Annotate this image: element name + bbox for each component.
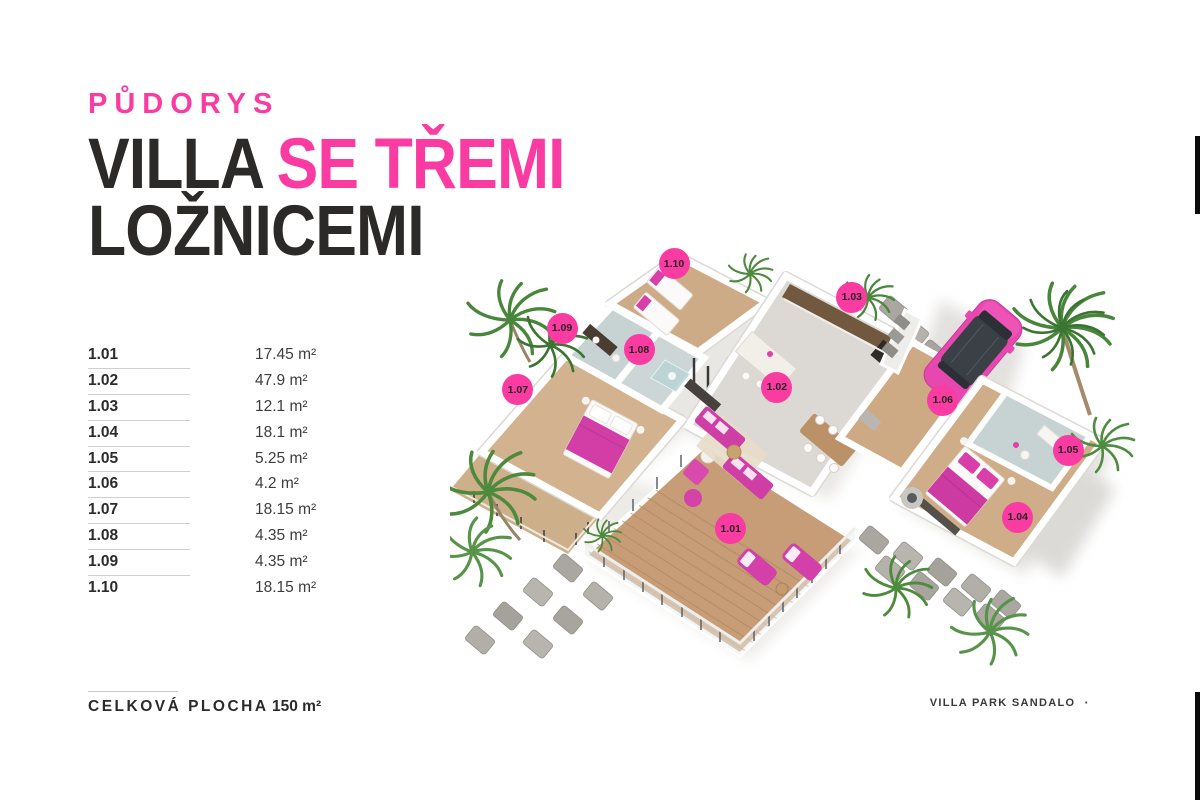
room-area: 4.35 m² bbox=[255, 527, 308, 545]
room-code: 1.08 bbox=[88, 527, 255, 545]
room-area: 18.1 m² bbox=[255, 424, 308, 442]
room-code: 1.05 bbox=[88, 450, 255, 468]
plan-marker-1.08: 1.08 bbox=[624, 334, 655, 365]
brochure-page: { "header": { "eyebrow": "PŮDORYS", "tit… bbox=[0, 0, 1200, 800]
room-code: 1.03 bbox=[88, 398, 255, 416]
room-row: 1.02 47.9 m² bbox=[88, 368, 368, 394]
room-area: 18.15 m² bbox=[255, 501, 316, 519]
footer-brand: VILLA PARK SANDALO · bbox=[930, 695, 1090, 710]
room-area: 4.35 m² bbox=[255, 553, 308, 571]
plan-marker-1.09: 1.09 bbox=[547, 313, 578, 344]
room-area: 12.1 m² bbox=[255, 398, 308, 416]
total-area-value: 150 m² bbox=[272, 698, 321, 716]
room-area: 18.15 m² bbox=[255, 579, 316, 597]
room-code: 1.07 bbox=[88, 501, 255, 519]
room-row: 1.08 4.35 m² bbox=[88, 523, 368, 549]
room-area: 17.45 m² bbox=[255, 346, 316, 364]
plan-marker-1.03: 1.03 bbox=[836, 282, 867, 313]
rooms-list: 1.01 17.45 m² 1.02 47.9 m² 1.03 12.1 m² … bbox=[88, 342, 368, 601]
room-row: 1.05 5.25 m² bbox=[88, 446, 368, 472]
floor-plan: 1.011.021.031.041.051.061.071.081.091.10 bbox=[450, 240, 1150, 690]
brand-separator-dot: · bbox=[1084, 695, 1090, 710]
room-area: 4.2 m² bbox=[255, 475, 299, 493]
plan-marker-1.05: 1.05 bbox=[1053, 435, 1084, 466]
page-edge-bar-bottom bbox=[1195, 692, 1200, 800]
brand-name: VILLA PARK SANDALO bbox=[930, 697, 1076, 709]
page-edge-bar-top bbox=[1195, 136, 1200, 214]
room-row: 1.06 4.2 m² bbox=[88, 471, 368, 497]
plan-marker-1.10: 1.10 bbox=[659, 248, 690, 279]
room-area: 5.25 m² bbox=[255, 450, 308, 468]
room-code: 1.06 bbox=[88, 475, 255, 493]
room-code: 1.02 bbox=[88, 372, 255, 390]
room-code: 1.01 bbox=[88, 346, 255, 364]
room-row: 1.10 18.15 m² bbox=[88, 575, 368, 601]
page-eyebrow: PŮDORYS bbox=[88, 88, 279, 121]
room-row: 1.07 18.15 m² bbox=[88, 497, 368, 523]
plan-marker-1.02: 1.02 bbox=[761, 372, 792, 403]
room-code: 1.10 bbox=[88, 579, 255, 597]
total-area-row: CELKOVÁ PLOCHA 150 m² bbox=[88, 691, 428, 716]
total-area-label: CELKOVÁ PLOCHA bbox=[88, 698, 272, 716]
room-row: 1.01 17.45 m² bbox=[88, 342, 368, 368]
room-row: 1.03 12.1 m² bbox=[88, 394, 368, 420]
plan-marker-1.06: 1.06 bbox=[927, 385, 958, 416]
room-row: 1.04 18.1 m² bbox=[88, 420, 368, 446]
plan-marker-1.04: 1.04 bbox=[1002, 502, 1033, 533]
room-code: 1.09 bbox=[88, 553, 255, 571]
room-row: 1.09 4.35 m² bbox=[88, 549, 368, 575]
room-code: 1.04 bbox=[88, 424, 255, 442]
floor-plan-rendering bbox=[450, 240, 1150, 690]
room-area: 47.9 m² bbox=[255, 372, 308, 390]
title-line-1: VILLASE TŘEMI bbox=[88, 132, 565, 199]
